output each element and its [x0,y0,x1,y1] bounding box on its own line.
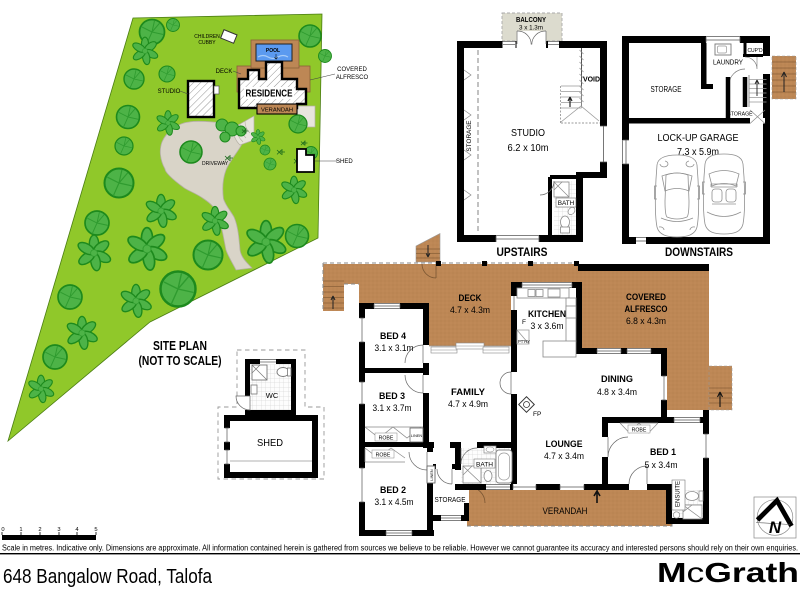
svg-text:SITE PLAN: SITE PLAN [153,339,207,353]
svg-text:STUDIO: STUDIO [158,89,181,95]
svg-text:CUBBY: CUBBY [198,40,216,46]
svg-text:SHED: SHED [336,159,353,165]
svg-text:4.7 x 4.9m: 4.7 x 4.9m [448,399,488,410]
svg-text:ROBE: ROBE [376,453,391,459]
svg-text:WC: WC [266,391,279,400]
svg-text:4.7 x 4.3m: 4.7 x 4.3m [450,305,490,316]
svg-text:4.7 x 3.4m: 4.7 x 3.4m [544,451,584,462]
svg-text:RESIDENCE: RESIDENCE [246,89,293,100]
svg-text:BED 1: BED 1 [650,447,677,458]
svg-text:VERANDAH: VERANDAH [261,108,293,114]
svg-text:POOL: POOL [266,48,280,54]
svg-text:3 x 3.6m: 3 x 3.6m [531,321,564,332]
svg-text:CUP'D: CUP'D [747,48,763,54]
svg-text:5 x 3.4m: 5 x 3.4m [645,460,678,471]
svg-text:KITCHEN: KITCHEN [528,309,566,320]
svg-text:LOCK-UP GARAGE: LOCK-UP GARAGE [658,132,739,144]
svg-text:(NOT TO SCALE): (NOT TO SCALE) [139,354,222,368]
svg-text:3.1 x 3.7m: 3.1 x 3.7m [373,403,412,414]
svg-text:VOID: VOID [583,77,600,84]
svg-text:ALFRESCO: ALFRESCO [625,304,668,315]
svg-text:4.8 x 3.4m: 4.8 x 3.4m [597,387,637,398]
svg-text:F: F [522,319,526,326]
svg-text:6.2 x 10m: 6.2 x 10m [508,143,549,154]
svg-text:BALCONY: BALCONY [516,17,546,24]
svg-text:COVERED: COVERED [337,67,367,73]
svg-text:SHED: SHED [257,437,283,449]
svg-text:McGrath: McGrath [657,557,799,588]
svg-text:ROBE: ROBE [632,428,647,434]
svg-text:VERANDAH: VERANDAH [543,506,588,517]
svg-text:STORAGE: STORAGE [435,495,466,504]
svg-text:DOWNSTAIRS: DOWNSTAIRS [665,245,733,259]
svg-text:3 x 1.3m: 3 x 1.3m [519,25,543,32]
svg-text:STORAGE: STORAGE [651,85,682,94]
svg-text:PT'RY: PT'RY [518,339,530,344]
svg-text:LINEN: LINEN [411,434,422,438]
svg-text:FP: FP [533,411,541,418]
svg-text:LAUNDRY: LAUNDRY [713,58,743,67]
svg-text:ALFRESCO: ALFRESCO [336,75,369,81]
svg-text:FAMILY: FAMILY [451,387,486,398]
svg-text:DRIVEWAY: DRIVEWAY [202,161,229,167]
svg-text:BED 2: BED 2 [380,485,406,496]
svg-text:BATH: BATH [558,200,575,207]
svg-text:COVERED: COVERED [626,292,666,303]
svg-text:N: N [769,518,782,537]
svg-text:ENSUITE: ENSUITE [675,480,682,507]
svg-text:6.8 x 4.3m: 6.8 x 4.3m [626,316,666,327]
svg-text:STUDIO: STUDIO [511,127,545,139]
svg-text:3.1 x 3.1m: 3.1 x 3.1m [375,343,414,354]
svg-text:ROBE: ROBE [379,436,394,442]
svg-text:BED 4: BED 4 [380,331,407,342]
svg-text:DECK: DECK [216,69,233,75]
svg-text:648 Bangalow Road, Talofa: 648 Bangalow Road, Talofa [3,565,212,588]
svg-text:LOUNGE: LOUNGE [546,439,583,450]
svg-text:BED 3: BED 3 [379,391,405,402]
svg-text:Scale in metres. Indicative on: Scale in metres. Indicative only. Dimens… [2,544,798,553]
svg-text:3.1 x 4.5m: 3.1 x 4.5m [375,497,414,508]
svg-text:LINEN: LINEN [430,469,434,480]
svg-text:DINING: DINING [601,374,633,385]
svg-text:STORAGE: STORAGE [466,120,473,151]
svg-text:BATH: BATH [476,462,493,469]
svg-text:DECK: DECK [459,293,482,304]
svg-text:STORAGE: STORAGE [727,112,753,118]
svg-text:UPSTAIRS: UPSTAIRS [497,245,548,259]
